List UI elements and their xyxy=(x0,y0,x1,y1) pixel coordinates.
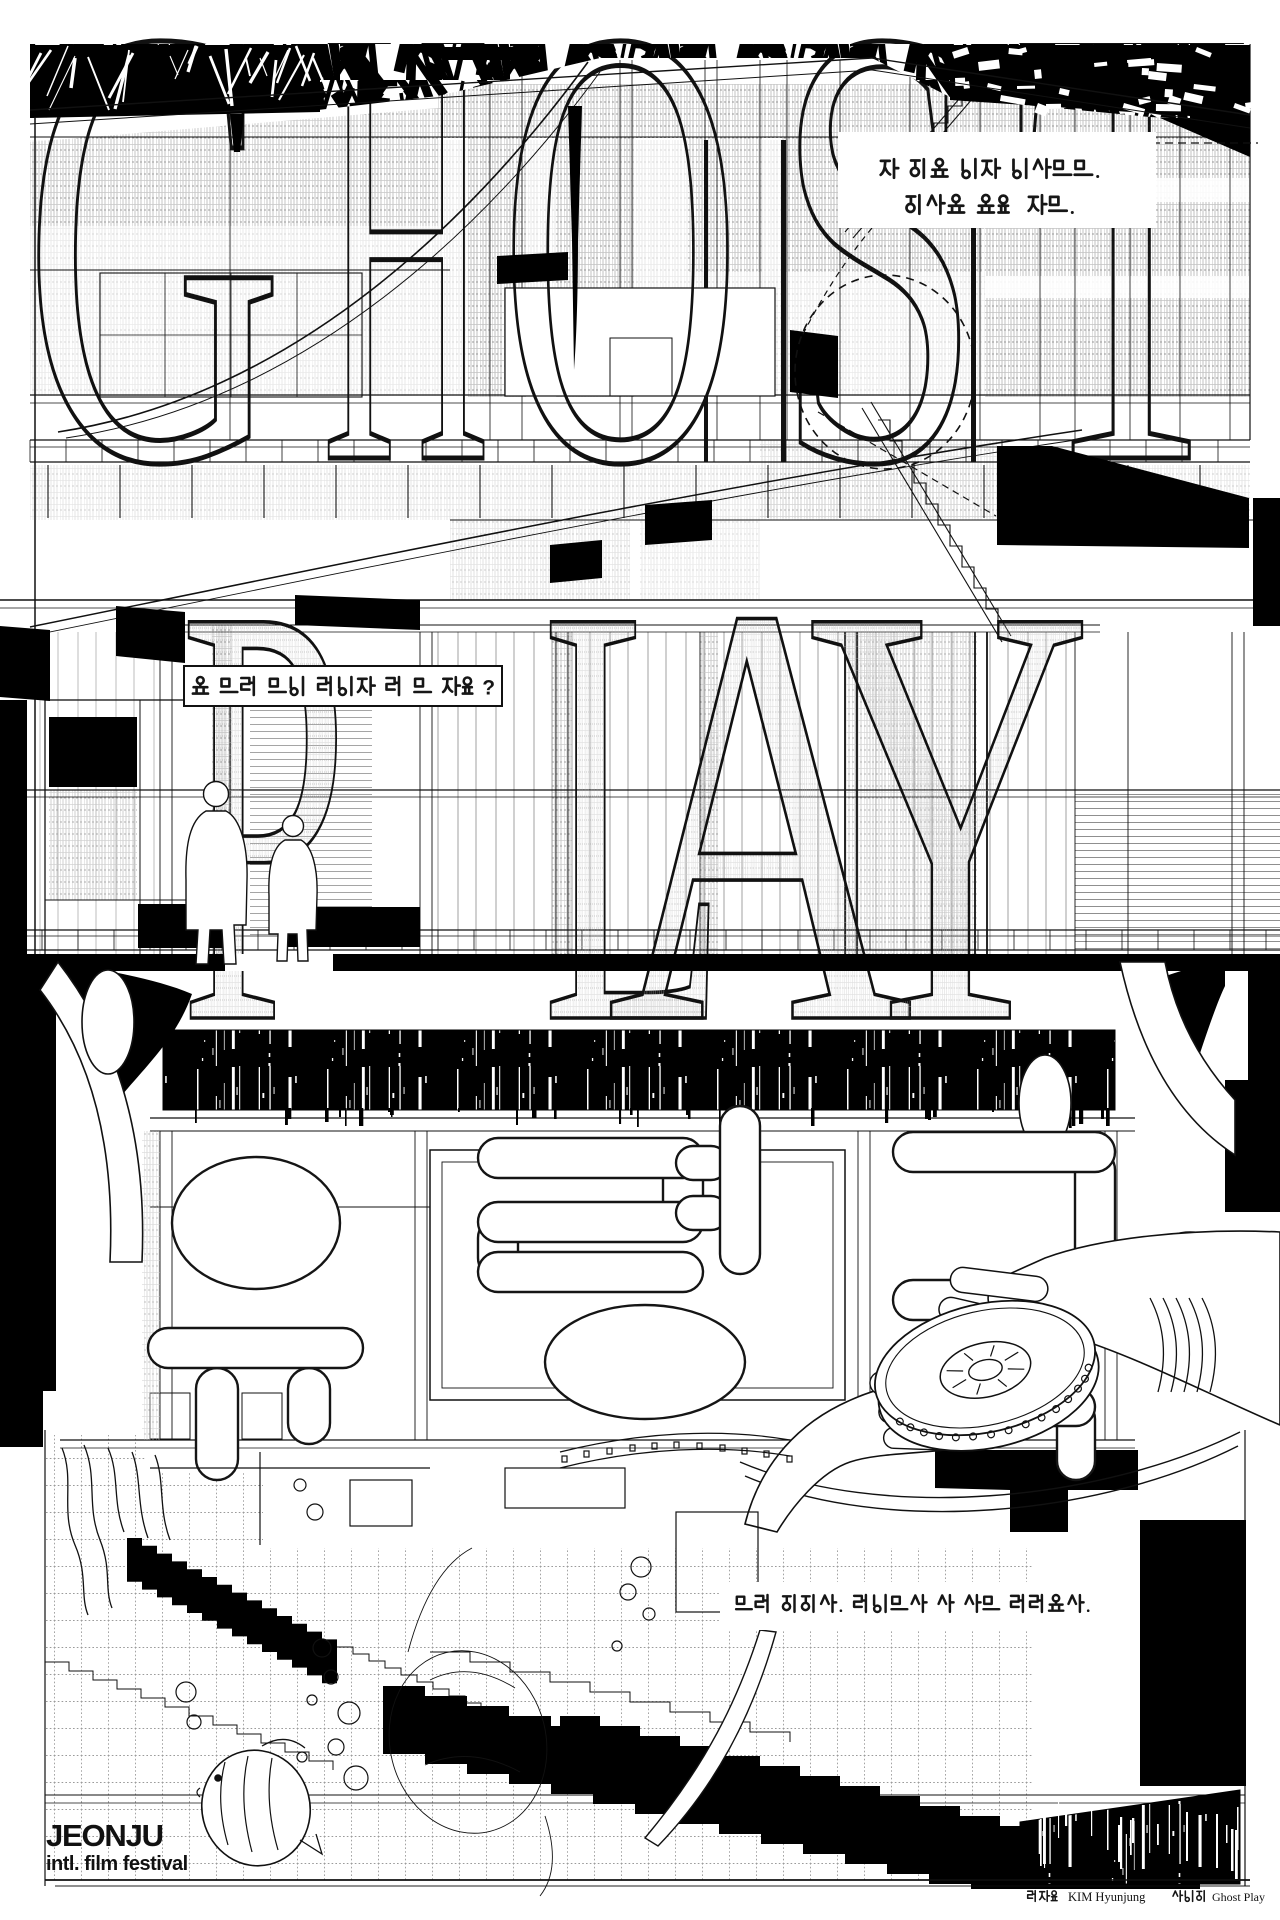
svg-text:Ghost Play: Ghost Play xyxy=(1212,1890,1265,1904)
svg-text:JEONJU: JEONJU xyxy=(46,1818,163,1853)
svg-text:?: ? xyxy=(482,676,495,699)
svg-text:intl. film festival: intl. film festival xyxy=(46,1853,188,1875)
svg-text:KIM Hyunjung: KIM Hyunjung xyxy=(1068,1890,1146,1904)
